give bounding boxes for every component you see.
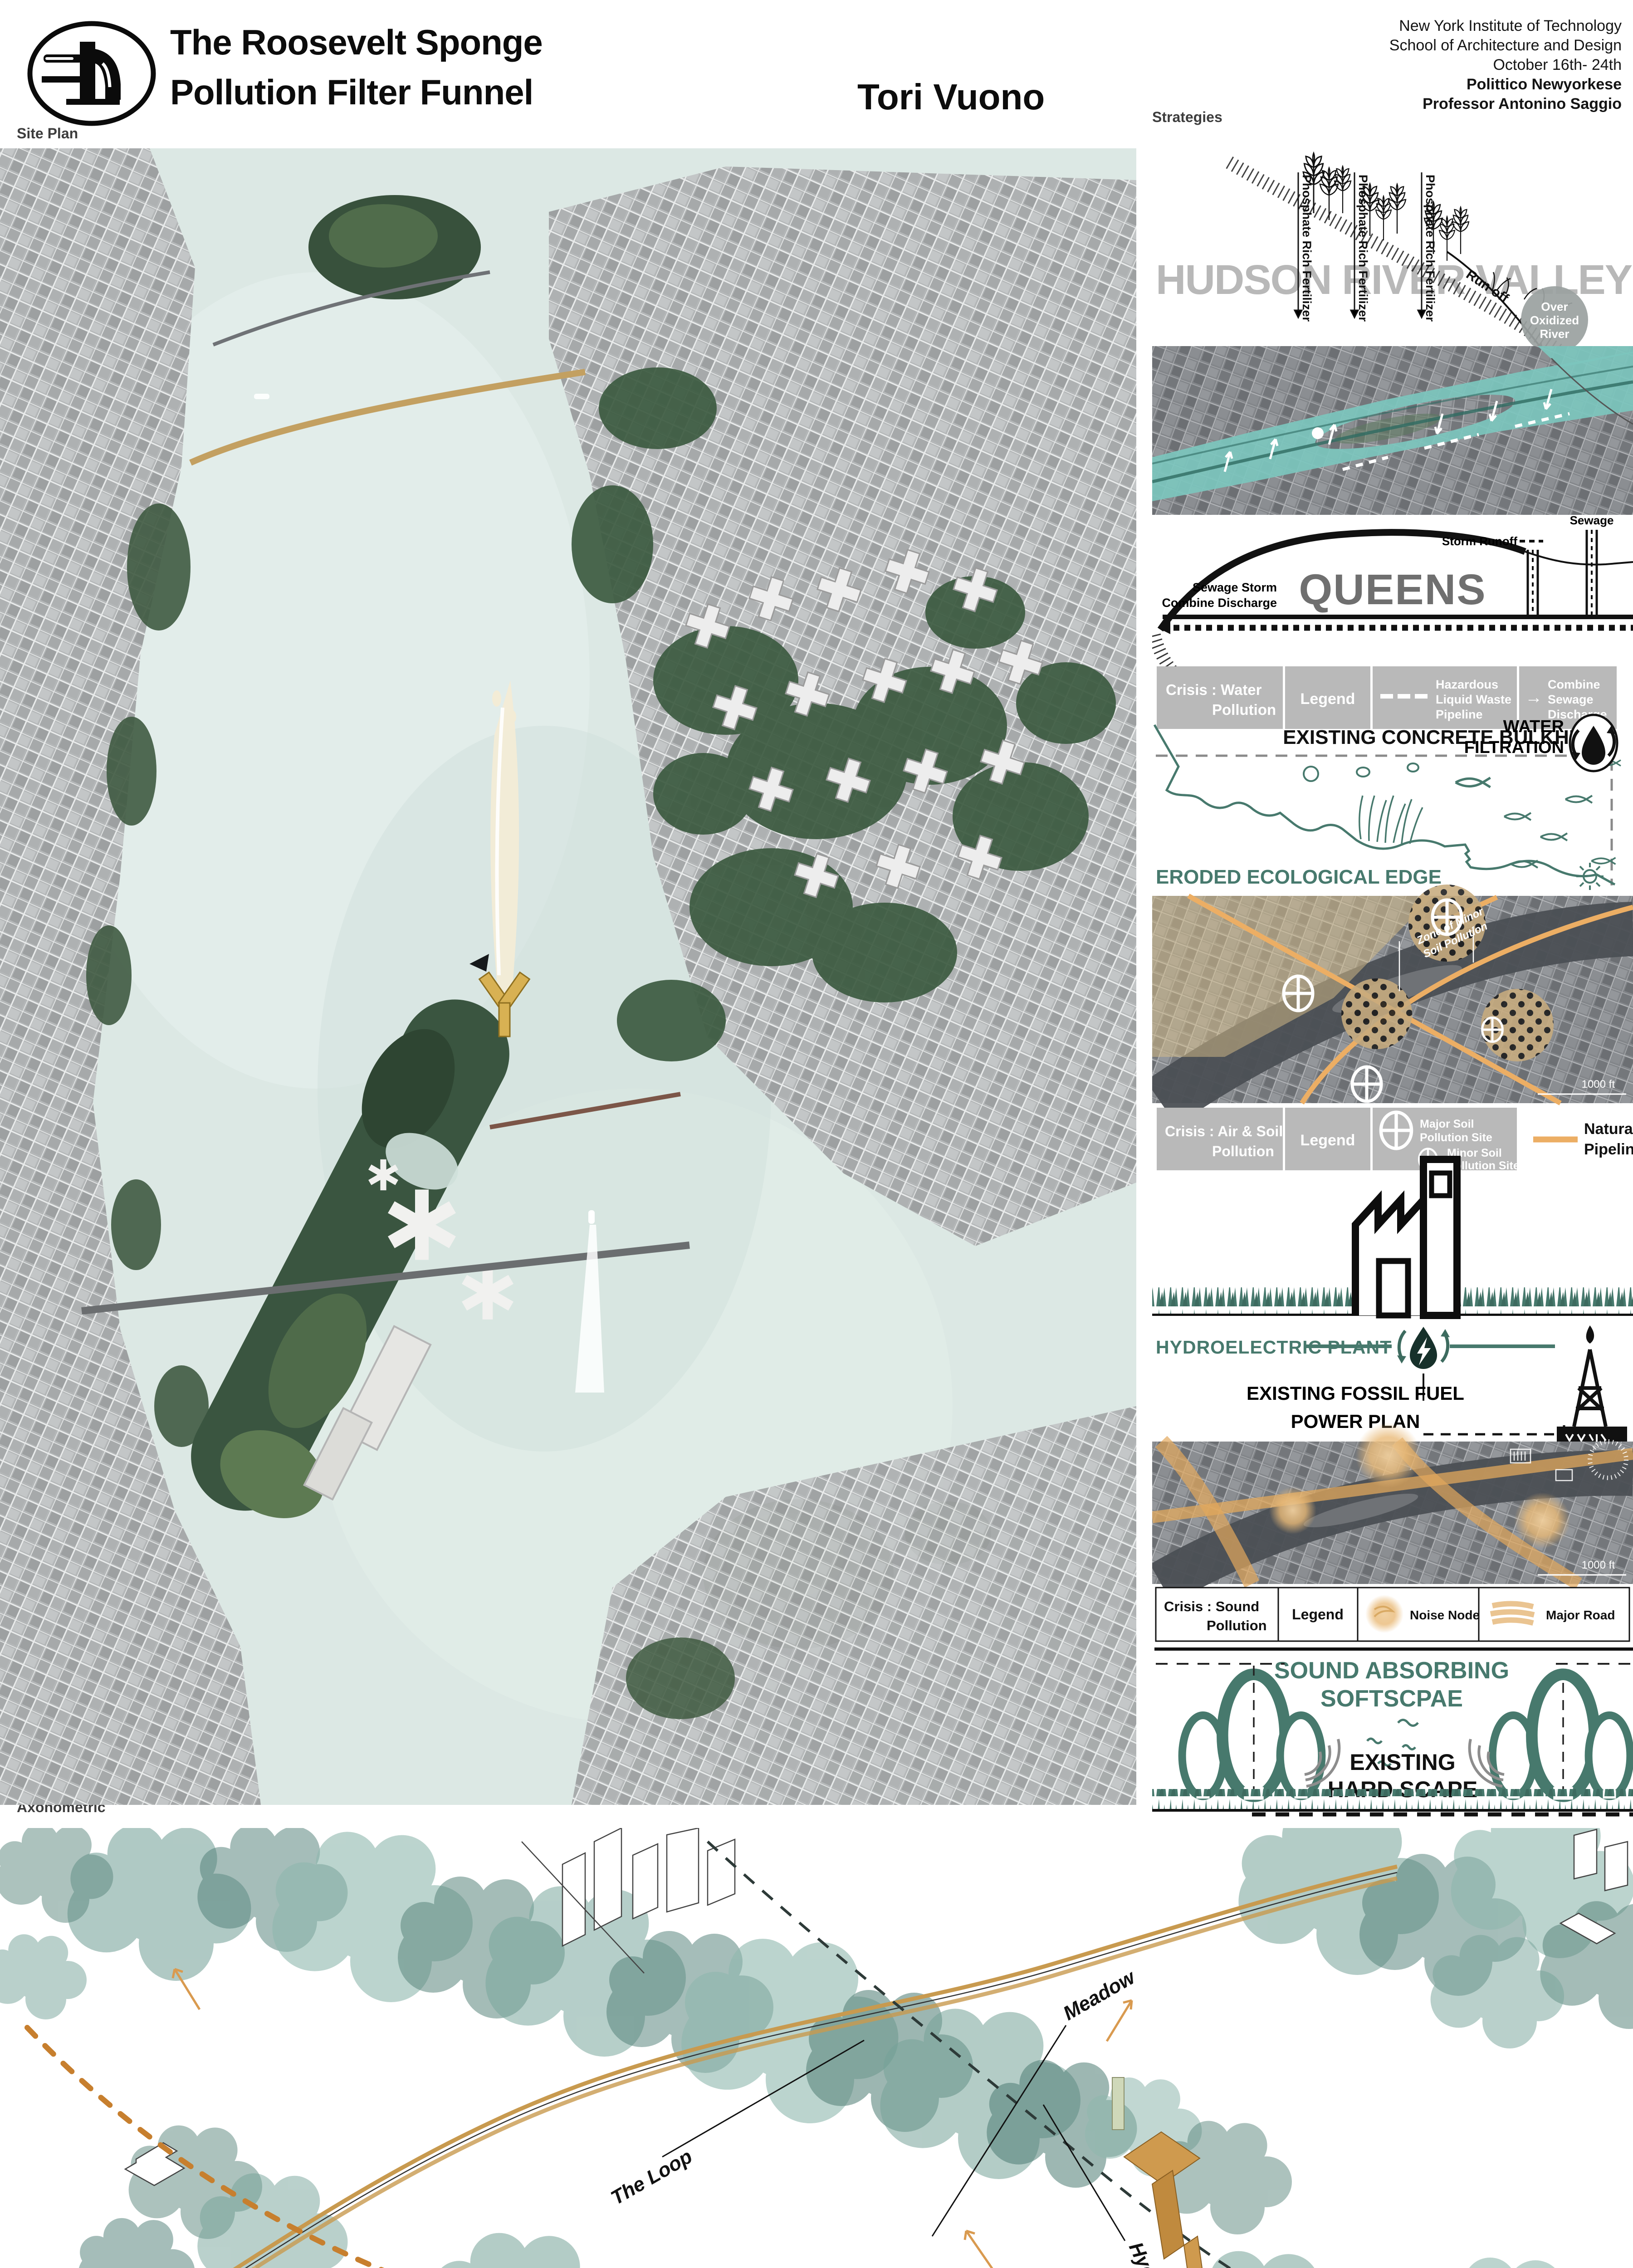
- crosshair-icon: [1284, 976, 1313, 1011]
- queens-title: QUEENS: [1299, 566, 1486, 614]
- sound-legend: Crisis : Sound Pollution Legend Noise No…: [1154, 1588, 1633, 1651]
- fertilizer-label: Phosphate Rich Fertilizer: [1423, 175, 1437, 322]
- crisis-sound-label: Crisis : Sound: [1164, 1598, 1259, 1614]
- legend-label: Legend: [1301, 1132, 1355, 1149]
- over-oxidized-river-bubble: Over Oxidized River: [1521, 286, 1588, 353]
- legend-label: Legend: [1292, 1606, 1344, 1623]
- mill-rock-island: [308, 195, 481, 299]
- credit-line: October 16th- 24th: [1259, 55, 1622, 75]
- legend-label: Legend: [1301, 690, 1355, 708]
- fertilizer-label: Phosphate Rich Fertilizer: [1356, 175, 1370, 322]
- poster-title-line1: The Roosevelt Sponge: [170, 17, 543, 67]
- crisis-soil-label: Crisis : Air & Soil: [1165, 1123, 1283, 1139]
- scale-bar-label: 1000 ft: [1582, 1078, 1615, 1090]
- softscape-grass: [1152, 1789, 1633, 1811]
- crisis-water-label2: Pollution: [1212, 701, 1276, 718]
- crosshair-icon: [1352, 1067, 1381, 1101]
- crosshair-icon: [1482, 1017, 1503, 1041]
- marsh-grass-strands: [1359, 796, 1423, 844]
- softscape-diagram: SOUND ABSORBING SOFTSCPAE: [1152, 1657, 1633, 1814]
- major-soil-site: [1341, 978, 1412, 1049]
- gas-pipeline-label2: Pipeline: [1584, 1141, 1633, 1158]
- poster-title: The Roosevelt Sponge Pollution Filter Fu…: [170, 17, 543, 117]
- major-site-label: Major Soil: [1420, 1118, 1474, 1130]
- factory-icon: [1352, 1159, 1457, 1315]
- section-label-strategies: Strategies: [1152, 109, 1222, 126]
- sound-aerial-map: 1000 ft: [1152, 1422, 1633, 1584]
- credit-line: Professor Antonino Saggio: [1259, 94, 1622, 114]
- energy-diagram: HYDROELECTRIC PLANT EXISTING FOSSIL FUEL…: [1152, 1159, 1633, 1453]
- pollution-funnel-logo: [18, 14, 168, 136]
- bubble-line: River: [1540, 327, 1569, 341]
- strategies-column: HUDSON RIVER VALLEY Phosphate Rich Ferti…: [1152, 150, 1633, 1817]
- sound-absorbing-label: SOUND ABSORBING: [1274, 1657, 1509, 1684]
- meadow-label: Meadow: [1060, 1965, 1140, 2025]
- soil-legend: Crisis : Air & Soil Pollution Legend Maj…: [1157, 1108, 1633, 1172]
- fossil-fuel-label: EXISTING FOSSIL FUEL: [1247, 1383, 1464, 1404]
- pipeline-label: Hazardous: [1436, 678, 1498, 691]
- scale-bar-label: 1000 ft: [1582, 1559, 1615, 1571]
- gas-pipeline-label: Natural Gas: [1584, 1120, 1633, 1138]
- credit-line: Polittico Newyorkese: [1259, 75, 1622, 94]
- hydroelectric-icon: [1397, 1320, 1450, 1373]
- major-site-label2: Pollution Site: [1420, 1131, 1492, 1144]
- site-plan-map: [0, 148, 1136, 1805]
- hudson-valley-diagram: HUDSON RIVER VALLEY Phosphate Rich Ferti…: [1152, 153, 1633, 515]
- bubble-line: Over: [1541, 300, 1568, 313]
- arrow-icon: →: [1525, 688, 1542, 707]
- section-label-site-plan: Site Plan: [17, 125, 78, 142]
- major-road-label: Major Road: [1546, 1608, 1615, 1622]
- noise-node: [1514, 1492, 1570, 1549]
- credit-line: New York Institute of Technology: [1259, 16, 1622, 36]
- oil-derrick-icon: [1557, 1325, 1627, 1453]
- credit-line: School of Architecture and Design: [1259, 36, 1622, 55]
- eroded-edge-label: ERODED ECOLOGICAL EDGE: [1156, 866, 1442, 888]
- pipeline-dash-icon: [1380, 694, 1428, 699]
- poster-title-line2: Pollution Filter Funnel: [170, 67, 543, 117]
- axonometric-drawing: Meadow The Loop Hydroplant: [0, 1828, 1633, 2268]
- pipeline-label: Pipeline: [1436, 708, 1483, 721]
- noise-node-icon: [1365, 1595, 1403, 1633]
- fertilizer-label: Phosphate Rich Fertilizer: [1300, 175, 1314, 322]
- existing-label: EXISTING: [1349, 1750, 1455, 1775]
- water-filtration-label: WATER: [1503, 717, 1564, 736]
- water-filtration-icon: [1570, 715, 1617, 771]
- combine-label: Sewage: [1548, 693, 1594, 706]
- soil-aerial-map: Zone of Minor Soil Pollution 1000 ft: [1152, 885, 1633, 1103]
- crisis-sound-label2: Pollution: [1207, 1618, 1267, 1633]
- hudson-aerial-map: [1152, 346, 1633, 515]
- discharge-label: Sewage Storm: [1193, 581, 1277, 594]
- credits-block: New York Institute of Technology School …: [1259, 16, 1622, 114]
- noise-node: [1269, 1487, 1316, 1534]
- noise-node: [1355, 1422, 1421, 1488]
- combine-label: Combine: [1548, 678, 1600, 691]
- crisis-water-label: Crisis : Water: [1166, 681, 1262, 698]
- sewage-label: Sewage: [1570, 513, 1614, 527]
- softscape-label: SOFTSCPAE: [1320, 1686, 1463, 1712]
- the-loop-label: The Loop: [607, 2145, 696, 2209]
- eroded-edge-diagram: EXISTING CONCRETE BULKHEAD: [1154, 715, 1621, 890]
- discharge-label: Combine Discharge: [1162, 596, 1277, 610]
- poster: The Roosevelt Sponge Pollution Filter Fu…: [0, 0, 1633, 2268]
- major-site-icon: [1381, 1112, 1411, 1149]
- bubble-line: Oxidized: [1530, 313, 1579, 327]
- pipeline-label: Liquid Waste: [1436, 693, 1511, 706]
- water-filtration-label2: FILTRATION: [1464, 738, 1564, 757]
- crisis-soil-label2: Pollution: [1212, 1143, 1274, 1159]
- noise-node-label: Noise Node: [1410, 1608, 1480, 1622]
- storm-runoff-label: Storm Runoff: [1442, 534, 1517, 548]
- author-name: Tori Vuono: [857, 76, 1175, 118]
